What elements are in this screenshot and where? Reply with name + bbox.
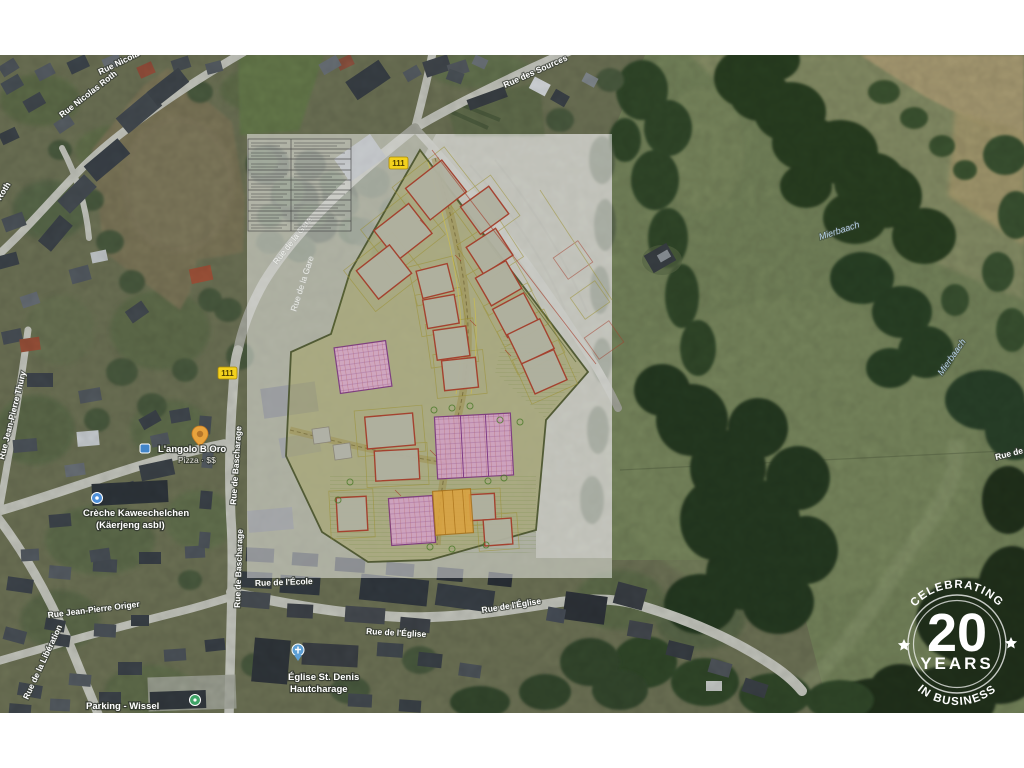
svg-text:L'angolo B Oro: L'angolo B Oro xyxy=(158,444,226,455)
svg-text:111: 111 xyxy=(392,159,405,168)
svg-text:Pizza · $$: Pizza · $$ xyxy=(178,455,216,465)
svg-text:Crèche Kaweechelchen: Crèche Kaweechelchen xyxy=(83,508,189,519)
svg-text:Rue de l'École: Rue de l'École xyxy=(255,576,313,588)
svg-text:111: 111 xyxy=(221,369,234,378)
svg-text:Hautcharage: Hautcharage xyxy=(290,684,348,695)
svg-text:YEARS: YEARS xyxy=(920,654,994,673)
svg-text:(Käerjeng asbl): (Käerjeng asbl) xyxy=(96,520,165,531)
svg-text:Parking - Wissel: Parking - Wissel xyxy=(86,701,159,712)
svg-text:Église St. Denis: Église St. Denis xyxy=(288,672,359,683)
